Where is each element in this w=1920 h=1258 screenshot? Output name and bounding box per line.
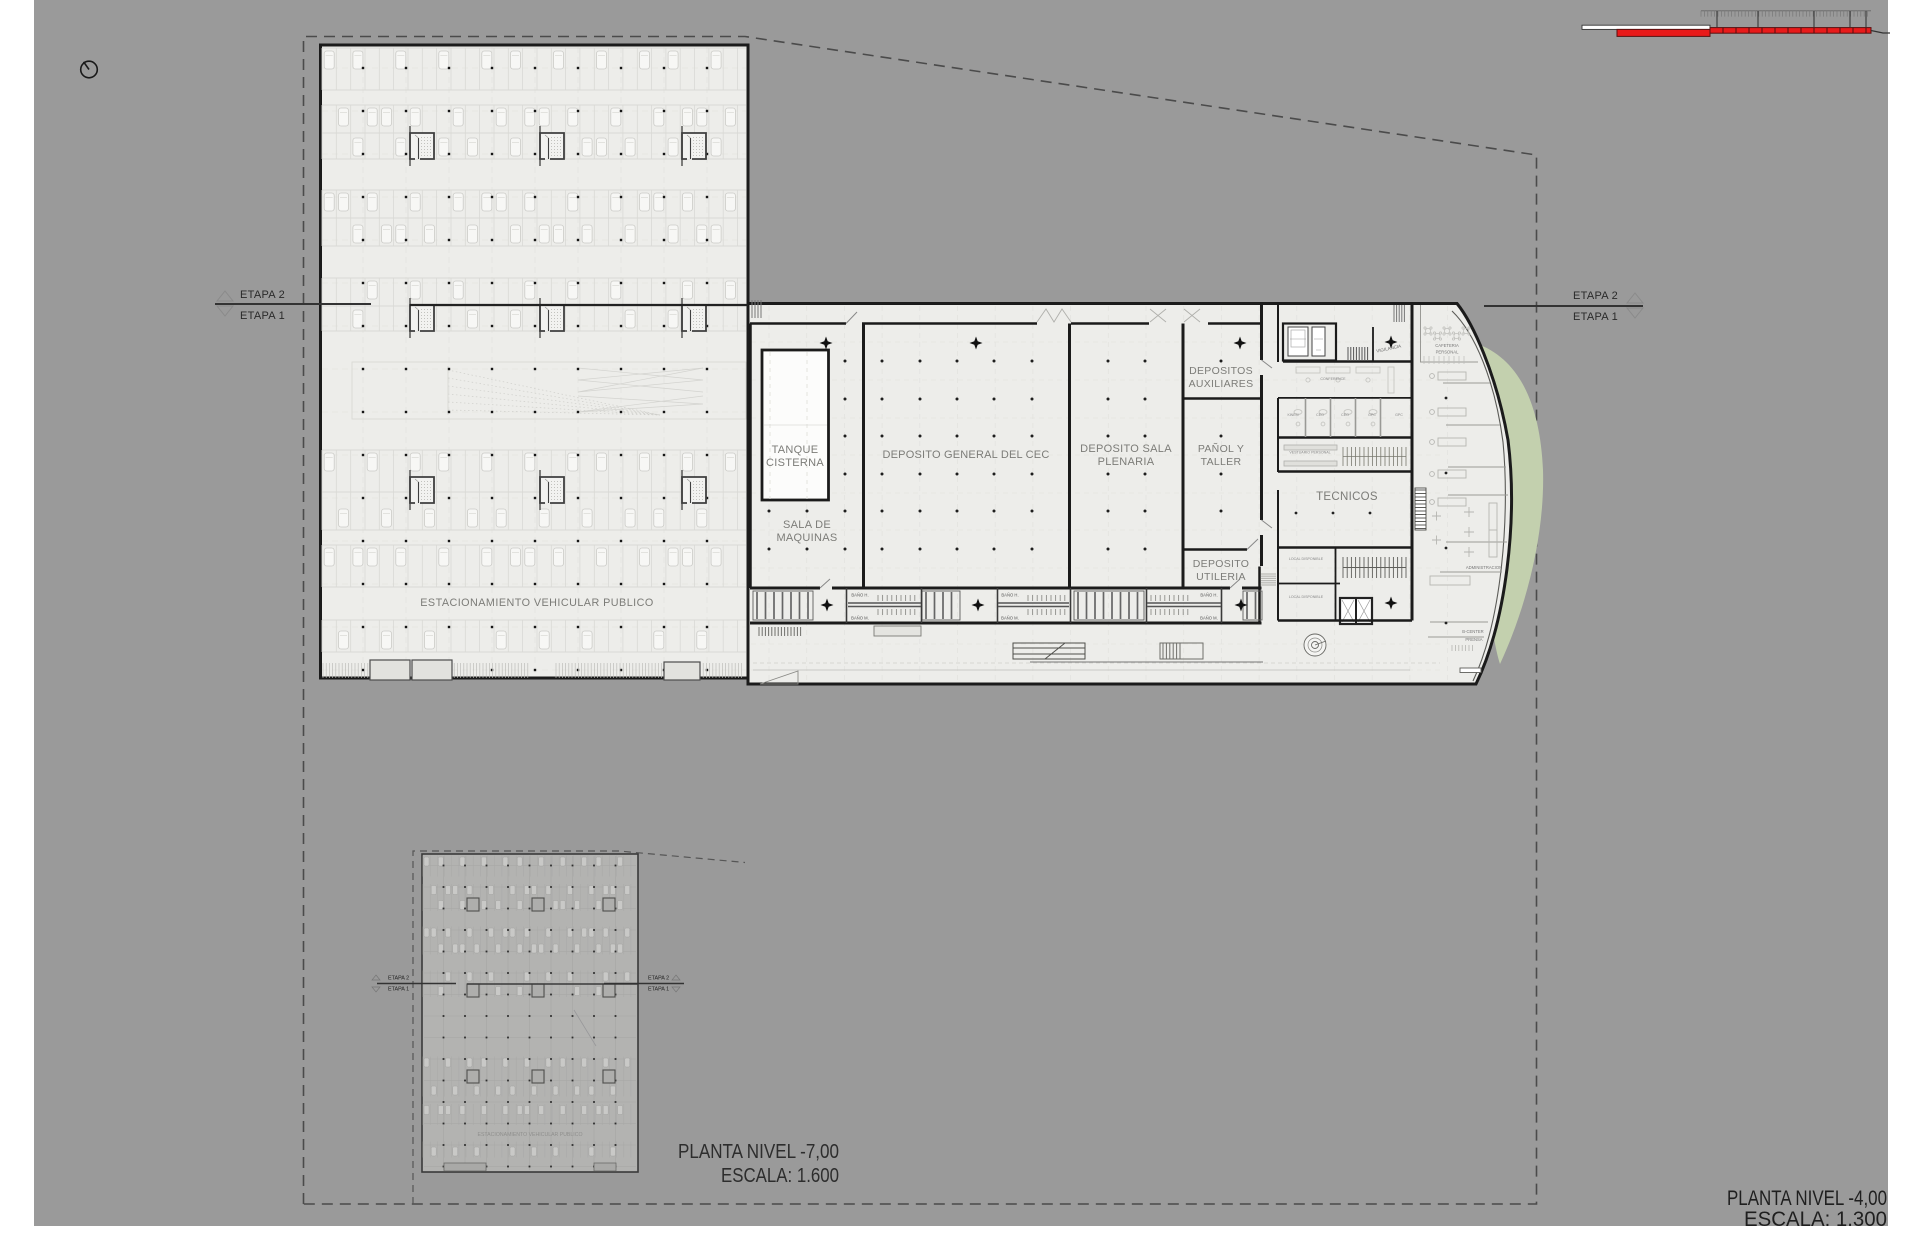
svg-text:ESCALA: 1.600: ESCALA: 1.600 bbox=[721, 1165, 839, 1187]
svg-text:LOCAL DISPONIBLE: LOCAL DISPONIBLE bbox=[1289, 557, 1324, 561]
svg-text:PLANTA NIVEL -7,00: PLANTA NIVEL -7,00 bbox=[678, 1141, 839, 1163]
svg-text:ETAPA 1: ETAPA 1 bbox=[648, 987, 669, 993]
svg-text:SALA DE: SALA DE bbox=[783, 519, 831, 531]
svg-text:UTILERIA: UTILERIA bbox=[1196, 571, 1246, 583]
svg-text:TANQUE: TANQUE bbox=[772, 444, 819, 456]
svg-text:CEO: CEO bbox=[1316, 413, 1324, 417]
svg-text:CAFETERIA: CAFETERIA bbox=[1435, 343, 1459, 348]
svg-text:DEPOSITO SALA: DEPOSITO SALA bbox=[1080, 443, 1172, 455]
svg-text:ETAPA 1: ETAPA 1 bbox=[388, 987, 409, 993]
svg-text:ETAPA 1: ETAPA 1 bbox=[1573, 311, 1618, 323]
svg-text:KINESI: KINESI bbox=[1287, 413, 1298, 417]
svg-text:DEPOSITOS: DEPOSITOS bbox=[1189, 365, 1253, 377]
svg-text:CONFERENCE: CONFERENCE bbox=[1320, 377, 1346, 381]
svg-text:VESTUARIO PERSONAL: VESTUARIO PERSONAL bbox=[1289, 451, 1330, 455]
svg-text:B-CENTER: B-CENTER bbox=[1462, 629, 1483, 634]
svg-text:BAÑO H.: BAÑO H. bbox=[851, 593, 868, 598]
svg-text:TALLER: TALLER bbox=[1201, 456, 1242, 468]
svg-text:ESCALA: 1.300: ESCALA: 1.300 bbox=[1744, 1208, 1887, 1231]
svg-text:ESTACIONAMIENTO VEHICULAR PUBL: ESTACIONAMIENTO VEHICULAR PUBLICO bbox=[420, 597, 653, 609]
svg-text:PERSONAL: PERSONAL bbox=[1436, 350, 1459, 355]
svg-text:DEPOSITO: DEPOSITO bbox=[1193, 558, 1249, 570]
svg-text:ETAPA 2: ETAPA 2 bbox=[240, 289, 285, 301]
svg-text:BAÑO H.: BAÑO H. bbox=[1001, 593, 1018, 598]
svg-text:BAÑO M.: BAÑO M. bbox=[1001, 616, 1019, 621]
svg-text:PRENSA: PRENSA bbox=[1465, 637, 1482, 642]
svg-text:ESTACIONAMIENTO VEHICULAR PUBL: ESTACIONAMIENTO VEHICULAR PUBLICO bbox=[477, 1132, 582, 1138]
svg-text:ADMINISTRACION: ADMINISTRACION bbox=[1466, 565, 1502, 570]
svg-text:CEO: CEO bbox=[1341, 413, 1349, 417]
svg-text:PLENARIA: PLENARIA bbox=[1098, 456, 1155, 468]
svg-text:BAÑO M.: BAÑO M. bbox=[1200, 616, 1218, 621]
svg-text:PAÑOL Y: PAÑOL Y bbox=[1198, 442, 1244, 455]
svg-text:DEPOSITO GENERAL DEL CEC: DEPOSITO GENERAL DEL CEC bbox=[883, 449, 1050, 461]
svg-text:LOCAL DISPONIBLE: LOCAL DISPONIBLE bbox=[1289, 595, 1324, 599]
svg-text:CISTERNA: CISTERNA bbox=[766, 457, 824, 469]
svg-text:AUXILIARES: AUXILIARES bbox=[1189, 378, 1254, 390]
svg-text:GPC: GPC bbox=[1395, 413, 1403, 417]
svg-text:GPC: GPC bbox=[1368, 413, 1376, 417]
svg-text:ETAPA 2: ETAPA 2 bbox=[388, 976, 409, 982]
svg-text:ETAPA 2: ETAPA 2 bbox=[1573, 290, 1618, 302]
svg-text:ETAPA 1: ETAPA 1 bbox=[240, 310, 285, 322]
svg-text:BAÑO H.: BAÑO H. bbox=[1200, 593, 1217, 598]
svg-text:PLANTA NIVEL -4,00: PLANTA NIVEL -4,00 bbox=[1727, 1187, 1887, 1210]
svg-text:TECNICOS: TECNICOS bbox=[1316, 491, 1378, 503]
svg-text:BAÑO M.: BAÑO M. bbox=[851, 616, 869, 621]
svg-text:MAQUINAS: MAQUINAS bbox=[776, 532, 837, 544]
svg-text:ETAPA 2: ETAPA 2 bbox=[648, 976, 669, 982]
